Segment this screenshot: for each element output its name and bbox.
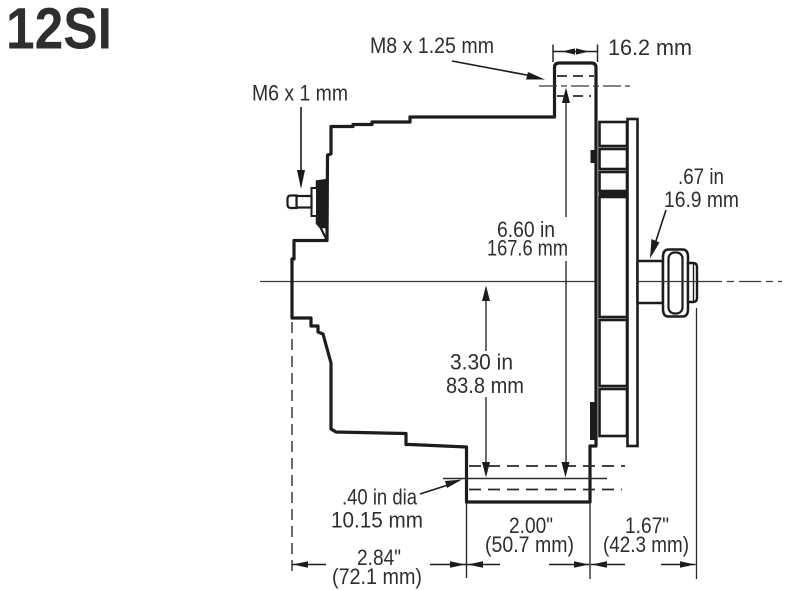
- svg-text:M8 x 1.25 mm: M8 x 1.25 mm: [370, 33, 494, 58]
- svg-text:M6 x 1 mm: M6 x 1 mm: [252, 81, 348, 106]
- svg-text:(72.1 mm): (72.1 mm): [332, 564, 422, 589]
- svg-text:167.6 mm: 167.6 mm: [487, 236, 568, 261]
- svg-text:10.15 mm: 10.15 mm: [331, 508, 423, 533]
- svg-text:12SI: 12SI: [6, 0, 112, 62]
- svg-text:.40 in dia: .40 in dia: [342, 485, 418, 510]
- svg-text:3.30 in: 3.30 in: [450, 350, 513, 375]
- svg-text:(42.3 mm): (42.3 mm): [603, 532, 689, 557]
- svg-text:16.2 mm: 16.2 mm: [608, 35, 692, 60]
- svg-text:16.9 mm: 16.9 mm: [664, 187, 739, 212]
- svg-text:(50.7 mm): (50.7 mm): [485, 532, 574, 557]
- svg-text:83.8 mm: 83.8 mm: [446, 373, 524, 398]
- svg-text:.67 in: .67 in: [678, 164, 724, 189]
